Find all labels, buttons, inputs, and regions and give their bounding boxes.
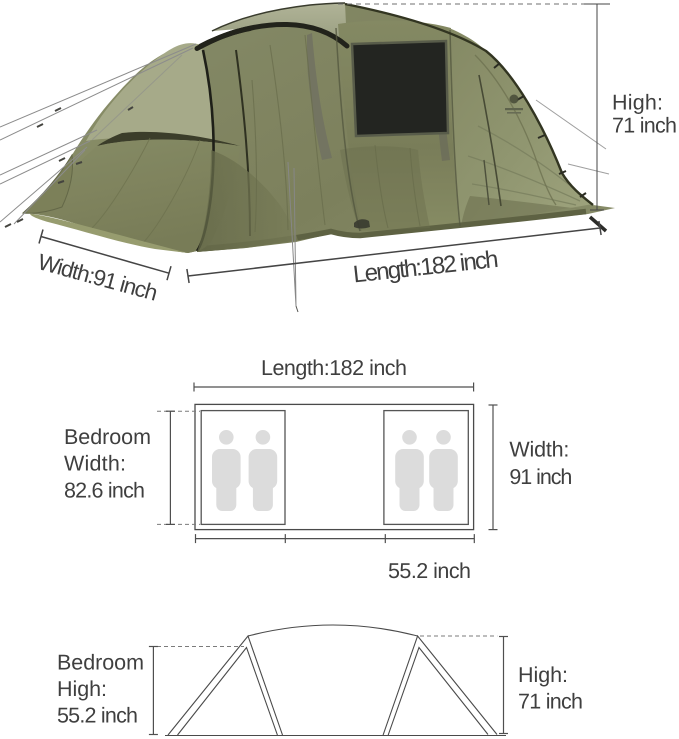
svg-text:91 inch: 91 inch bbox=[509, 465, 572, 489]
svg-text:Length:182 inch: Length:182 inch bbox=[261, 356, 407, 380]
svg-text:High:: High: bbox=[612, 91, 663, 115]
svg-text:55.2 inch: 55.2 inch bbox=[57, 704, 138, 728]
svg-text:55.2 inch: 55.2 inch bbox=[388, 559, 471, 583]
svg-text:High:: High: bbox=[57, 677, 107, 701]
svg-text:Bedroom: Bedroom bbox=[64, 425, 151, 449]
svg-text:Width:: Width: bbox=[509, 437, 569, 461]
svg-text:Width:: Width: bbox=[64, 452, 126, 476]
svg-text:Bedroom: Bedroom bbox=[57, 651, 144, 675]
svg-text:High:: High: bbox=[518, 663, 568, 687]
svg-text:71 inch: 71 inch bbox=[612, 114, 677, 138]
svg-text:71 inch: 71 inch bbox=[518, 690, 583, 714]
svg-text:82.6 inch: 82.6 inch bbox=[64, 479, 145, 503]
